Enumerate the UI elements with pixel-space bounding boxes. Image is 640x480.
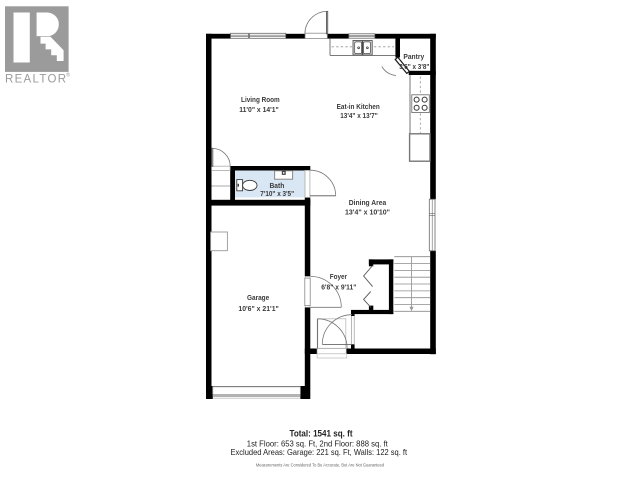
svg-text:Eat-in Kitchen: Eat-in Kitchen <box>337 102 380 111</box>
svg-text:10'6" x 21'1": 10'6" x 21'1" <box>238 304 279 313</box>
svg-text:11'0" x 14'1": 11'0" x 14'1" <box>239 105 279 114</box>
svg-text:Excluded Areas: Garage: 221 sq: Excluded Areas: Garage: 221 sq. Ft, Wall… <box>231 447 408 457</box>
svg-text:Living Room: Living Room <box>241 95 280 104</box>
svg-text:13'4" x 10'10": 13'4" x 10'10" <box>345 207 390 216</box>
svg-text:Garage: Garage <box>247 293 269 302</box>
svg-text:REALTOR: REALTOR <box>5 73 66 85</box>
svg-text:6'8" x 9'11": 6'8" x 9'11" <box>321 282 357 291</box>
svg-text:3'6" x 3'8": 3'6" x 3'8" <box>399 62 430 71</box>
svg-text:13'4" x 13'7": 13'4" x 13'7" <box>340 111 378 120</box>
svg-text:7'10" x 3'5": 7'10" x 3'5" <box>260 189 294 198</box>
svg-text:®: ® <box>66 72 70 79</box>
svg-text:Measurements Are Considered To: Measurements Are Considered To Be Accura… <box>256 463 385 468</box>
svg-text:Pantry: Pantry <box>403 52 425 61</box>
svg-text:Dining Area: Dining Area <box>349 198 387 207</box>
svg-text:Total: 1541 sq. ft: Total: 1541 sq. ft <box>290 429 353 439</box>
svg-text:Foyer: Foyer <box>330 272 347 281</box>
